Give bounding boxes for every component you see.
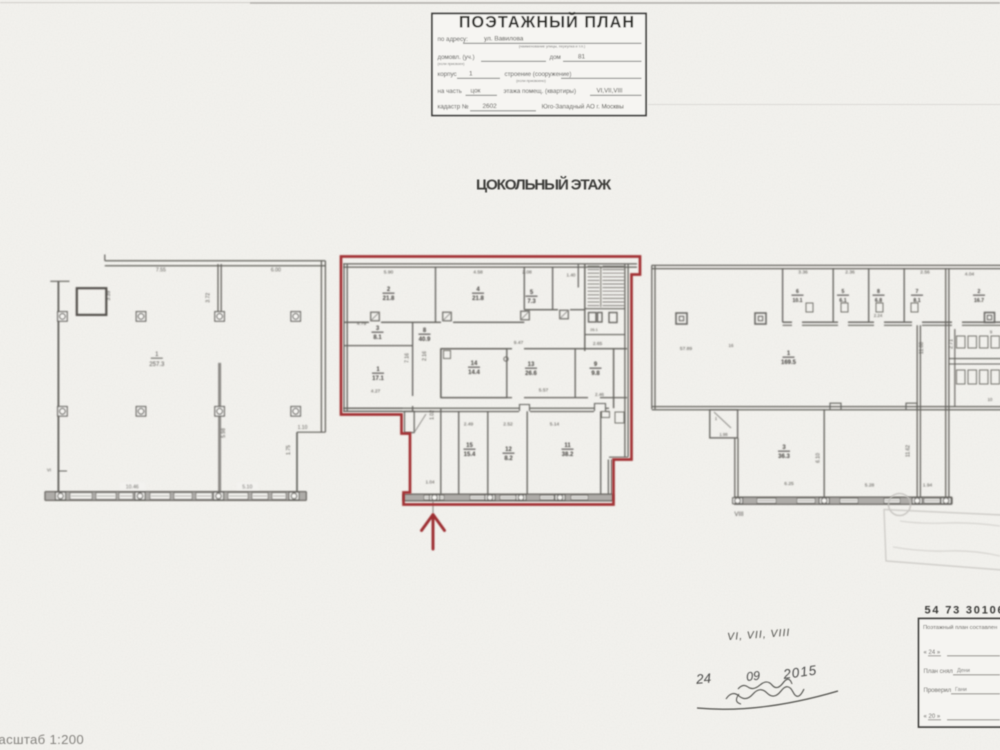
svg-text:Масштаб 1:200: Масштаб 1:200 — [0, 732, 84, 747]
svg-text:7.3: 7.3 — [527, 299, 536, 305]
svg-text:2.24: 2.24 — [874, 313, 883, 318]
svg-text:кадастр №: кадастр № — [438, 104, 469, 111]
svg-text:2.52: 2.52 — [503, 422, 513, 428]
svg-text:План снял: План снял — [924, 669, 954, 675]
svg-text:на часть: на часть — [438, 88, 462, 95]
svg-text:40.9: 40.9 — [419, 337, 431, 343]
svg-text:1.10: 1.10 — [298, 425, 308, 431]
svg-text:11.88: 11.88 — [919, 342, 925, 354]
svg-text:8.1: 8.1 — [373, 335, 382, 341]
svg-text:VIII: VIII — [734, 511, 744, 518]
svg-text:24: 24 — [694, 671, 711, 687]
svg-text:5.28: 5.28 — [865, 483, 875, 489]
svg-text:13: 13 — [528, 362, 535, 368]
svg-text:ПОЭТАЖНЫЙ ПЛАН: ПОЭТАЖНЫЙ ПЛАН — [459, 13, 635, 32]
svg-text:10: 10 — [988, 397, 993, 402]
svg-text:(если присвоено): (если присвоено) — [516, 79, 546, 83]
svg-text:1.02: 1.02 — [430, 410, 436, 420]
svg-text:6.1: 6.1 — [839, 298, 846, 304]
svg-text:3.72: 3.72 — [205, 293, 211, 303]
svg-text:« 20 »: « 20 » — [924, 714, 941, 720]
svg-text:16: 16 — [729, 343, 734, 348]
svg-text:4.79: 4.79 — [357, 321, 367, 327]
svg-text:ул. Вавилова: ул. Вавилова — [484, 36, 524, 43]
svg-text:2.08: 2.08 — [522, 270, 532, 276]
svg-text:38.2: 38.2 — [562, 452, 574, 458]
svg-text:7.16: 7.16 — [405, 353, 411, 363]
svg-text:21.8: 21.8 — [383, 296, 395, 302]
svg-text:17.1: 17.1 — [372, 376, 384, 382]
svg-text:6.00: 6.00 — [271, 267, 281, 273]
svg-text:5.10: 5.10 — [242, 484, 252, 490]
svg-text:2.56: 2.56 — [920, 270, 930, 276]
svg-text:6.25: 6.25 — [784, 481, 794, 487]
svg-text:11.62: 11.62 — [906, 445, 912, 457]
svg-text:4.58: 4.58 — [473, 270, 483, 276]
svg-text:2.71: 2.71 — [949, 339, 955, 349]
svg-text:54 73 30106: 54 73 30106 — [925, 605, 1000, 617]
svg-text:2.36: 2.36 — [845, 270, 855, 276]
svg-text:2.49: 2.49 — [464, 422, 474, 428]
svg-text:26.1: 26.1 — [590, 327, 599, 332]
svg-text:3.39: 3.39 — [106, 291, 112, 301]
svg-text:1.98: 1.98 — [719, 432, 728, 437]
svg-text:5.57: 5.57 — [539, 388, 549, 394]
svg-text:10.46: 10.46 — [126, 484, 139, 490]
svg-text:09: 09 — [745, 669, 760, 684]
svg-text:этажа помещ. (квартиры): этажа помещ. (квартиры) — [504, 88, 577, 95]
svg-text:1: 1 — [469, 71, 473, 78]
svg-text:7.55: 7.55 — [156, 267, 166, 273]
svg-text:1.40: 1.40 — [567, 273, 576, 278]
svg-text:VI,VII,VIII: VI,VII,VIII — [597, 88, 623, 95]
svg-text:строение (сооружение): строение (сооружение) — [505, 71, 572, 78]
svg-text:Гани: Гани — [955, 687, 967, 693]
svg-text:15: 15 — [466, 443, 473, 449]
svg-text:2.46: 2.46 — [595, 392, 604, 397]
svg-text:14: 14 — [471, 361, 478, 367]
svg-text:10.1: 10.1 — [792, 298, 802, 304]
svg-text:корпус: корпус — [438, 71, 457, 78]
svg-text:8: 8 — [877, 289, 880, 295]
svg-text:7: 7 — [916, 289, 919, 295]
svg-text:4.27: 4.27 — [371, 389, 381, 395]
svg-text:2: 2 — [978, 289, 981, 295]
svg-text:3.36: 3.36 — [798, 270, 808, 276]
svg-text:57.89: 57.89 — [680, 346, 693, 352]
svg-text:5.14: 5.14 — [550, 422, 560, 428]
svg-text:Проверил: Проверил — [924, 688, 952, 694]
svg-text:дом: дом — [550, 54, 561, 61]
svg-text:5.90: 5.90 — [384, 270, 394, 276]
svg-text:5.98: 5.98 — [221, 428, 227, 438]
svg-text:ЦОКОЛЬНЫЙ ЭТАЖ: ЦОКОЛЬНЫЙ ЭТАЖ — [476, 176, 611, 194]
svg-text:8.1: 8.1 — [913, 298, 920, 304]
svg-text:6: 6 — [796, 289, 799, 295]
svg-text:Поэтажный план составлен: Поэтажный план составлен — [923, 624, 997, 631]
svg-text:81: 81 — [578, 54, 586, 61]
svg-text:(если присвоен): (если присвоен) — [438, 62, 465, 66]
svg-text:1.04: 1.04 — [425, 480, 435, 485]
svg-text:169.5: 169.5 — [781, 360, 797, 366]
svg-text:15.4: 15.4 — [464, 452, 476, 458]
svg-text:12: 12 — [505, 447, 512, 453]
svg-text:« 24 »: « 24 » — [924, 650, 941, 656]
svg-text:8.2: 8.2 — [504, 456, 513, 462]
svg-text:14.4: 14.4 — [468, 370, 480, 376]
svg-text:26.6: 26.6 — [525, 371, 537, 377]
svg-text:21.8: 21.8 — [472, 296, 484, 302]
svg-text:по адресу:: по адресу: — [438, 36, 469, 43]
svg-text:9.8: 9.8 — [591, 371, 600, 377]
svg-text:VI: VI — [47, 468, 51, 473]
svg-text:2602: 2602 — [483, 103, 498, 110]
svg-text:6.8: 6.8 — [875, 298, 882, 304]
svg-text:1.75: 1.75 — [286, 445, 292, 455]
svg-text:5: 5 — [842, 289, 845, 295]
svg-text:2.16: 2.16 — [422, 351, 428, 361]
svg-text:Юго-Западный АО г. Москвы: Юго-Западный АО г. Москвы — [542, 104, 625, 111]
svg-text:11: 11 — [564, 443, 571, 449]
svg-text:16.7: 16.7 — [974, 298, 984, 304]
svg-text:домовл. (уч.): домовл. (уч.) — [438, 54, 475, 61]
svg-text:1.94: 1.94 — [923, 483, 933, 489]
svg-text:(наименование улицы, переулка: (наименование улицы, переулка и т.п.) — [519, 44, 585, 48]
svg-text:257.3: 257.3 — [149, 362, 165, 368]
svg-text:4.04: 4.04 — [965, 272, 975, 278]
svg-text:цок: цок — [471, 88, 481, 95]
svg-text:36.3: 36.3 — [778, 454, 790, 460]
svg-text:6.10: 6.10 — [816, 453, 822, 463]
svg-text:9.47: 9.47 — [514, 340, 524, 346]
svg-text:2.65: 2.65 — [593, 341, 603, 347]
svg-text:Дени: Дени — [957, 668, 970, 674]
